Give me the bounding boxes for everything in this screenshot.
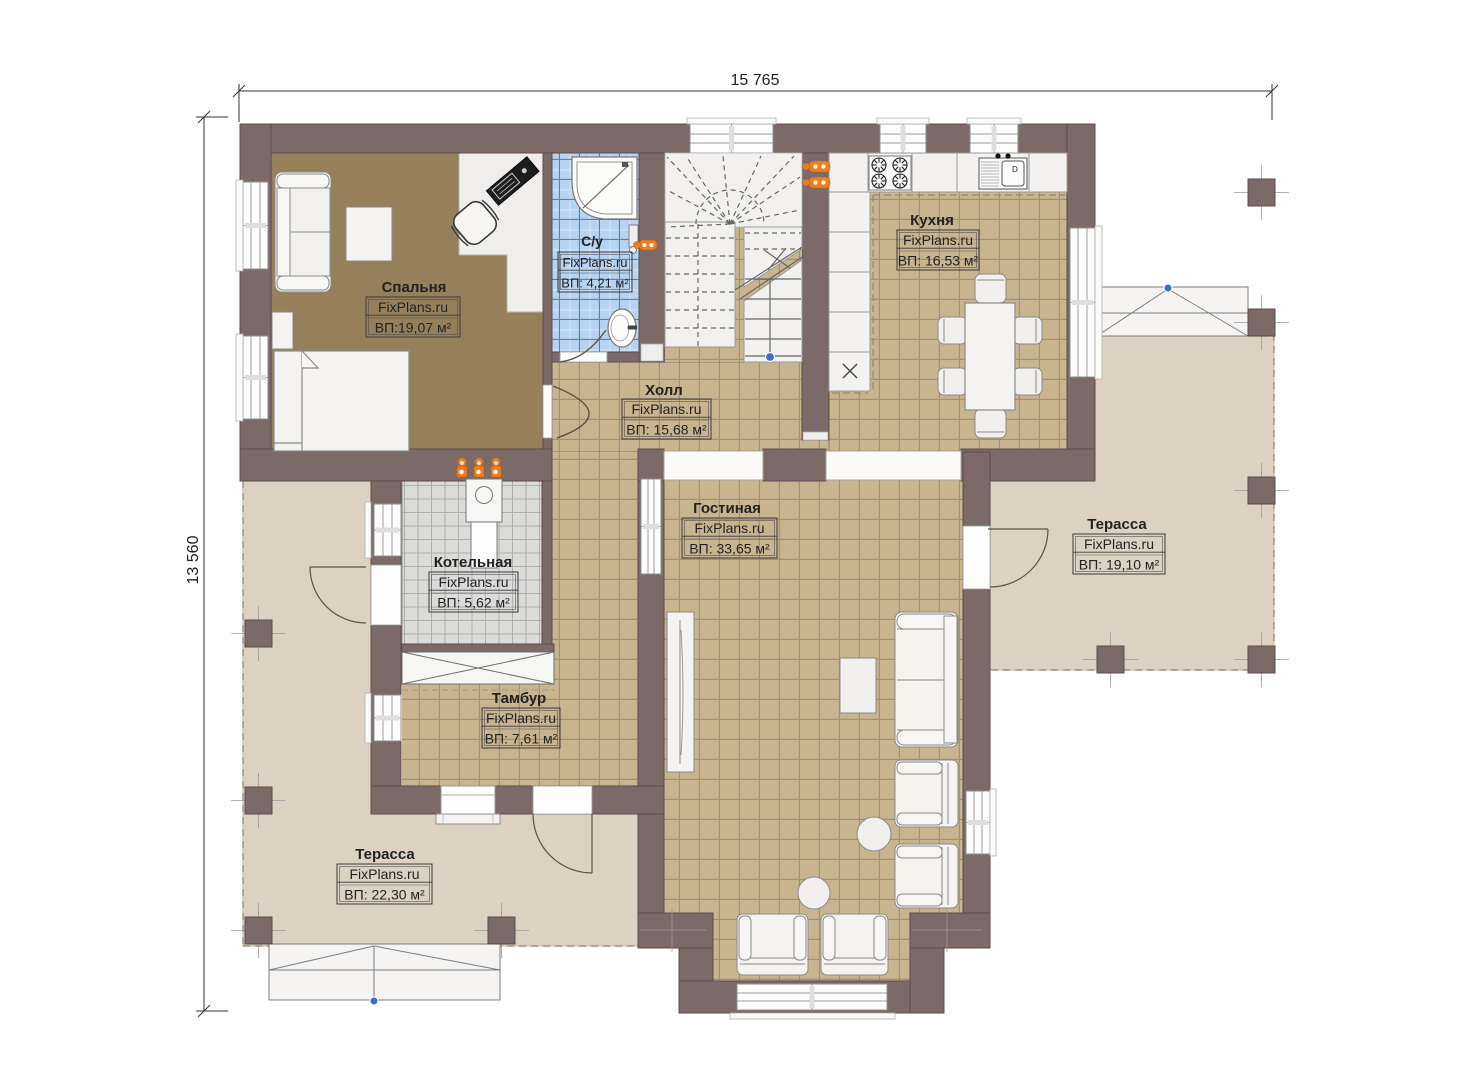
svg-text:Холл: Холл	[645, 382, 683, 399]
svg-text:ВП: 33,65 м²: ВП: 33,65 м²	[689, 541, 770, 557]
svg-text:Тамбур: Тамбур	[492, 690, 546, 707]
svg-text:Гостиная: Гостиная	[693, 500, 761, 517]
svg-text:FixPlans.ru: FixPlans.ru	[631, 401, 701, 417]
svg-text:FixPlans.ru: FixPlans.ru	[349, 866, 419, 882]
svg-text:Спальня: Спальня	[382, 279, 447, 296]
svg-text:ВП: 19,10 м²: ВП: 19,10 м²	[1079, 557, 1160, 573]
svg-text:FixPlans.ru: FixPlans.ru	[486, 710, 556, 726]
svg-text:Терасса: Терасса	[1087, 516, 1147, 533]
svg-text:FixPlans.ru: FixPlans.ru	[694, 520, 764, 536]
svg-text:Котельная: Котельная	[434, 554, 513, 571]
svg-text:Кухня: Кухня	[910, 212, 954, 229]
svg-text:ВП: 5,62 м²: ВП: 5,62 м²	[437, 595, 510, 611]
svg-text:ВП: 7,61 м²: ВП: 7,61 м²	[485, 731, 558, 747]
svg-text:FixPlans.ru: FixPlans.ru	[1084, 536, 1154, 552]
svg-text:D: D	[1012, 165, 1018, 174]
svg-text:ВП: 4,21 м²: ВП: 4,21 м²	[561, 276, 629, 291]
svg-text:ВП: 16,53 м²: ВП: 16,53 м²	[898, 253, 979, 269]
svg-text:FixPlans.ru: FixPlans.ru	[378, 299, 448, 315]
svg-text:13 560: 13 560	[185, 535, 202, 584]
svg-text:FixPlans.ru: FixPlans.ru	[562, 255, 627, 270]
svg-text:FixPlans.ru: FixPlans.ru	[903, 232, 973, 248]
svg-text:ВП: 22,30 м²: ВП: 22,30 м²	[344, 887, 425, 903]
svg-text:ВП:19,07 м²: ВП:19,07 м²	[375, 320, 452, 336]
svg-text:FixPlans.ru: FixPlans.ru	[438, 574, 508, 590]
svg-text:С/у: С/у	[581, 233, 603, 249]
svg-text:15 765: 15 765	[731, 72, 780, 89]
svg-text:Терасса: Терасса	[355, 846, 415, 863]
svg-text:ВП: 15,68 м²: ВП: 15,68 м²	[626, 422, 707, 438]
